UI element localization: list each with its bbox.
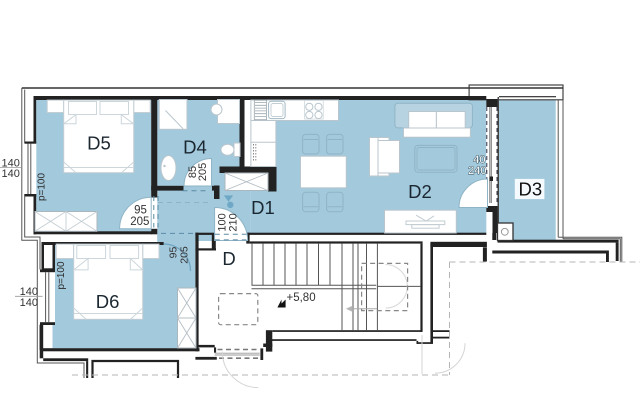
svg-text:D: D (222, 248, 235, 269)
svg-text:205: 205 (130, 216, 149, 228)
svg-text:D1: D1 (251, 197, 275, 218)
svg-text:205: 205 (179, 246, 191, 264)
svg-text:240: 240 (468, 165, 486, 177)
svg-text:+5,80: +5,80 (287, 292, 316, 304)
svg-text:140: 140 (20, 297, 38, 309)
svg-text:D5: D5 (87, 133, 111, 154)
svg-text:205: 205 (197, 163, 209, 181)
svg-text:p=100: p=100 (56, 261, 67, 290)
svg-text:D2: D2 (408, 181, 432, 202)
svg-text:95: 95 (134, 205, 147, 217)
svg-text:D4: D4 (183, 137, 207, 158)
svg-text:140: 140 (2, 168, 20, 180)
svg-text:p=100: p=100 (37, 173, 48, 202)
svg-text:D3: D3 (518, 179, 542, 200)
svg-text:210: 210 (228, 213, 240, 231)
svg-text:D6: D6 (96, 291, 120, 312)
